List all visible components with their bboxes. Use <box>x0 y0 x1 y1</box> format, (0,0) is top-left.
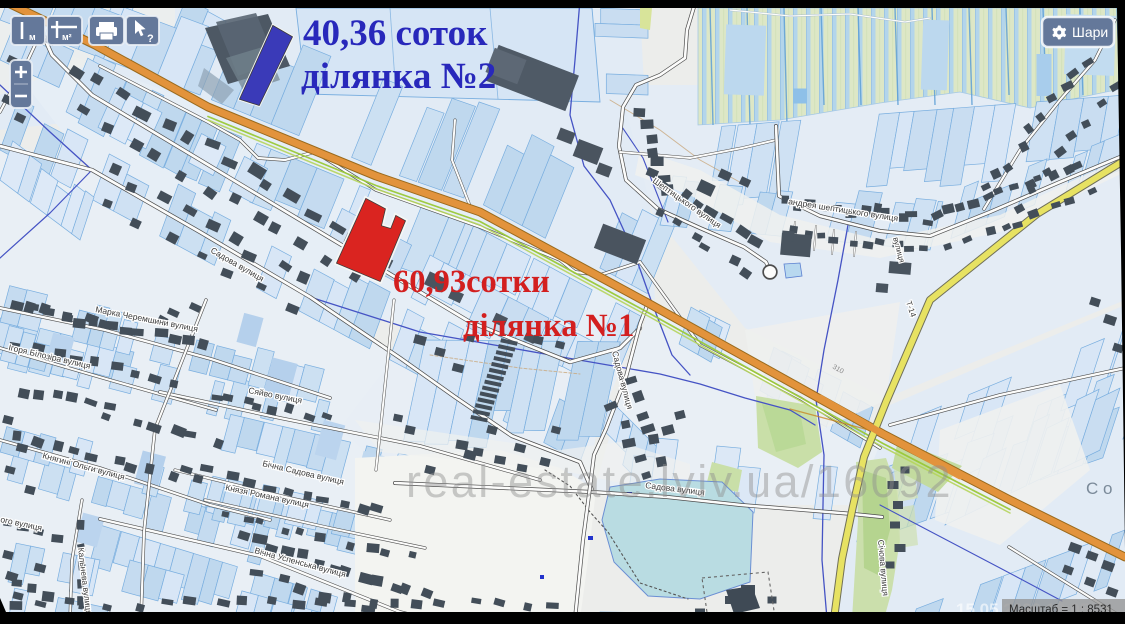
svg-text:?: ? <box>147 33 154 45</box>
svg-text:ділянка №1: ділянка №1 <box>463 308 635 344</box>
svg-text:м: м <box>29 32 36 42</box>
svg-text:м²: м² <box>62 32 72 42</box>
svg-text:Шари: Шари <box>1072 24 1108 40</box>
svg-text:ділянка №2: ділянка №2 <box>301 56 496 97</box>
svg-text:real-estate.lviv.ua/16092: real-estate.lviv.ua/16092 <box>406 456 953 507</box>
svg-text:60,93сотки: 60,93сотки <box>393 264 550 300</box>
svg-text:С о: С о <box>1086 479 1112 498</box>
svg-text:40,36 соток: 40,36 соток <box>303 13 488 54</box>
